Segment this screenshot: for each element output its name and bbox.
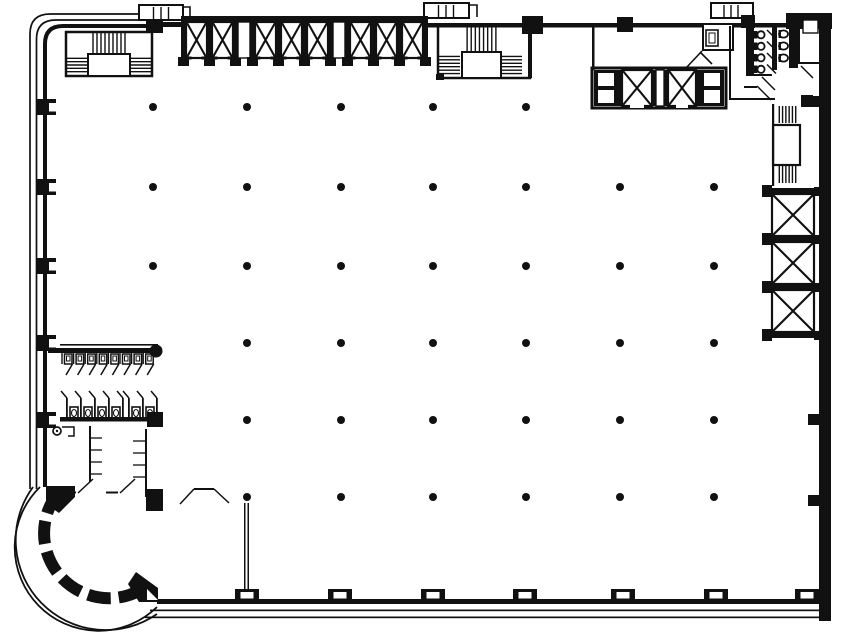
elevator-bank-back-wall	[181, 16, 428, 23]
structural-column-dot	[243, 183, 251, 191]
structural-column-dot	[429, 493, 437, 501]
vent-shaft-slot	[598, 90, 614, 103]
structural-column-dot	[522, 416, 530, 424]
left-wall-column-notch	[49, 103, 60, 112]
stair-east-landing	[773, 125, 800, 165]
lavatory-partition	[145, 429, 147, 497]
elevator-post	[328, 19, 333, 61]
wall-stub	[436, 74, 444, 80]
elevator-door-gap	[630, 103, 644, 108]
washroom-wall-thin	[48, 344, 158, 346]
floor-drain-center	[56, 430, 58, 432]
corner-wall-notch	[803, 20, 818, 33]
structural-column-dot	[337, 183, 345, 191]
elevator-door-gap	[676, 103, 688, 108]
structural-column-dot	[616, 339, 624, 347]
vent-shaft-slot	[704, 73, 720, 86]
structural-column-dot	[429, 262, 437, 270]
vent-shaft-slot	[704, 90, 720, 103]
wall-stub	[106, 492, 118, 494]
structural-column-dot	[429, 339, 437, 347]
bottom-wall-outer-line	[145, 617, 831, 619]
elevator-sill	[281, 57, 287, 60]
structural-column-dot	[337, 103, 345, 111]
facade-mullion-notch	[710, 592, 723, 599]
structural-column-dot	[243, 416, 251, 424]
urinal-divider	[80, 398, 82, 419]
structural-column-dot	[243, 339, 251, 347]
wall-stub	[194, 488, 214, 490]
washroom-wall	[746, 26, 754, 74]
right-exterior-wall	[819, 13, 831, 621]
urinal-divider	[108, 398, 110, 419]
structural-column-dot	[337, 262, 345, 270]
structural-column-dot	[710, 262, 718, 270]
structural-column-dot	[429, 416, 437, 424]
elevator-shaft-gap	[238, 22, 250, 58]
room-wall	[798, 62, 819, 64]
lavatory-partition	[89, 426, 91, 482]
structural-column-dot	[710, 416, 718, 424]
washroom-wall	[789, 22, 798, 68]
core-partition-wall	[592, 26, 595, 70]
left-wall-column-notch	[49, 416, 60, 425]
right-wall-column-block	[808, 495, 819, 506]
facade-mullion-notch	[334, 592, 347, 599]
column-block	[617, 17, 633, 32]
structural-column-dot	[616, 262, 624, 270]
structural-column-dot	[522, 339, 530, 347]
elevator-door-jamb	[420, 57, 431, 66]
floor-plan-sheet: Architectural floor plan — office tower …	[0, 0, 846, 638]
structural-column-dot	[616, 493, 624, 501]
facade-mullion-notch	[519, 592, 532, 599]
elevator-post	[233, 19, 238, 61]
structural-column-dot	[337, 339, 345, 347]
elevator-sill	[376, 57, 382, 60]
corridor-wall	[729, 98, 775, 100]
elevator-shaft-gap	[333, 22, 345, 58]
stair-east-side-wall	[772, 104, 774, 186]
stair-northwest-landing	[88, 54, 130, 76]
urinal-divider	[128, 398, 130, 419]
left-wall-column-notch	[49, 262, 60, 271]
elevator-sill	[350, 57, 356, 60]
stair-north-landing	[462, 52, 501, 78]
vent-shaft-slot	[598, 73, 614, 86]
room-wall	[798, 28, 800, 64]
elevator-door-jamb	[762, 185, 772, 197]
left-wall-column-notch	[49, 183, 60, 192]
elevator-door-jamb	[762, 233, 772, 245]
structural-column-dot	[616, 416, 624, 424]
bottom-wall-middle-line	[150, 610, 831, 612]
elevator-sill	[307, 57, 313, 60]
urinal-divider	[94, 398, 96, 419]
right-wall-column-block	[808, 96, 819, 107]
urinal-divider	[156, 398, 158, 419]
wall-end-cap	[147, 412, 163, 427]
column-block	[146, 489, 163, 511]
elevator-post	[423, 19, 428, 61]
structural-column-dot	[149, 183, 157, 191]
structural-column-dot	[243, 262, 251, 270]
structural-column-dot	[522, 183, 530, 191]
elevator-sill	[402, 57, 408, 60]
structural-column-dot	[710, 183, 718, 191]
structural-column-dot	[243, 493, 251, 501]
structural-column-dot	[243, 103, 251, 111]
facade-mullion-notch	[241, 592, 254, 599]
structural-column-dot	[522, 103, 530, 111]
interior-partition-line	[244, 503, 246, 599]
elevator-door-jamb	[762, 281, 772, 293]
wall-stub	[744, 86, 757, 88]
elevator-sill	[212, 57, 218, 60]
interior-partition-line	[248, 503, 250, 599]
structural-column-dot	[710, 339, 718, 347]
structural-column-dot	[149, 103, 157, 111]
core-partition-wall	[729, 26, 731, 100]
left-wall-column-notch	[49, 339, 60, 348]
elevator-sill	[255, 57, 261, 60]
column-block	[522, 16, 543, 34]
elevator-shaft-gap	[656, 70, 664, 106]
washroom-wall	[746, 74, 772, 76]
structural-column-dot	[616, 183, 624, 191]
structural-column-dot	[429, 183, 437, 191]
structural-column-dot	[710, 493, 718, 501]
urinal-divider	[122, 398, 124, 419]
elevator-sill	[186, 57, 192, 60]
facade-mullion-notch	[617, 592, 630, 599]
washroom-wall	[48, 348, 157, 353]
elevator-door-jamb	[762, 329, 772, 341]
right-wall-column-block	[808, 414, 819, 425]
floor-plan-drawing: Architectural floor plan — office tower …	[0, 0, 846, 638]
facade-mullion-notch	[427, 592, 440, 599]
structural-column-dot	[337, 416, 345, 424]
facade-mullion-notch	[801, 592, 814, 599]
structural-column-dot	[337, 493, 345, 501]
structural-column-dot	[522, 262, 530, 270]
structural-column-dot	[429, 103, 437, 111]
urinal-divider	[142, 398, 144, 419]
urinal-divider	[66, 398, 68, 419]
core-post	[696, 70, 700, 106]
structural-column-dot	[522, 493, 530, 501]
structural-column-dot	[149, 262, 157, 270]
